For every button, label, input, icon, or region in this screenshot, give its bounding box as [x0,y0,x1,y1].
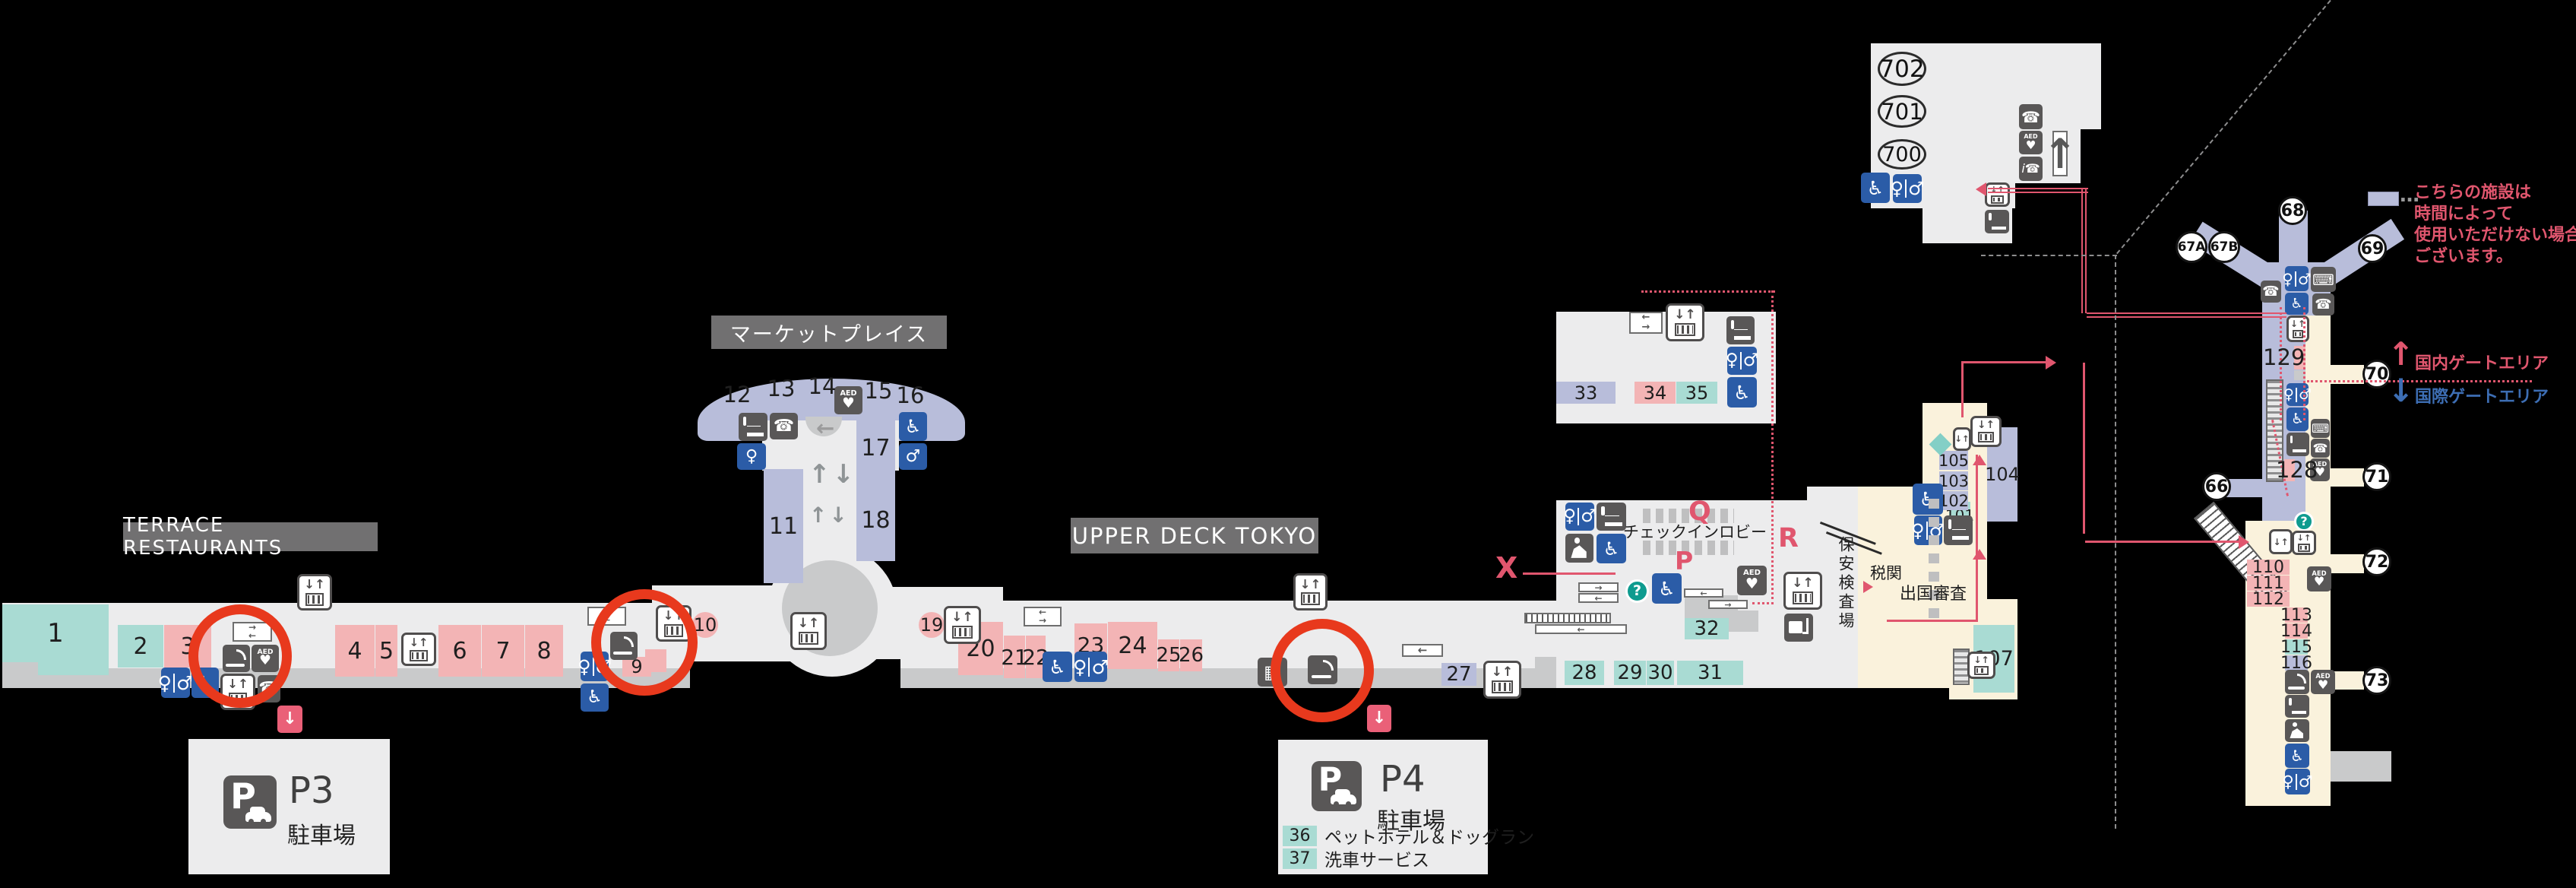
sat-arm-72 [2329,554,2364,573]
moving-walkway-icon: → [1578,582,1619,592]
escalator-icon [2269,529,2293,554]
domestic-arrow-icon: ↑ [2388,338,2414,371]
shop-1: 1 [2,604,109,662]
phone-icon [770,413,798,439]
gate-71: 71 [2362,462,2391,491]
down-to-parking-arrow-icon [1367,705,1391,732]
route-line [2087,312,2286,318]
legend-note-line: ございます。 [2414,246,2576,268]
airport-terminal-floor-map: TERRACE RESTAURANTS マーケットプレイス UPPER DECK… [0,0,2576,888]
shop-16: 16 [895,384,926,407]
baby-room-icon [1597,503,1626,531]
toilet-icon [2285,769,2310,794]
parking-icon: P [1312,761,1362,811]
gate-69: 69 [2358,234,2387,263]
parking-icon: P [223,775,277,829]
route-arrow [2239,535,2249,549]
highlight-circle [1271,619,1374,722]
legend-note-line: こちらの施設は [2414,182,2576,204]
shop-115: 115 [2285,639,2308,655]
parking-p3-type: 駐車場 [287,817,356,850]
baby-room-icon [1726,316,1755,344]
international-arrow-icon: ↓ [2388,374,2414,408]
item-number-badge: 36 [1283,826,1317,846]
shop-26: 26 [1180,639,1202,671]
shop-31: 31 [1677,661,1743,685]
shop-19: 19 [919,612,945,638]
label-128: 128 [2276,458,2309,481]
escalator-icon [1953,427,1971,451]
route-line [1961,361,1964,417]
toilet-icon [1727,347,1757,375]
item-number-badge: 37 [1283,848,1317,869]
parking-p4-item-37: 37 洗車サービス [1283,845,1429,871]
route-line [1752,602,1774,604]
phone-icon [2261,281,2281,303]
shop-33: 33 [1556,382,1616,404]
shop-30: 30 [1647,661,1674,685]
mens-toilet-icon [899,443,927,470]
elevator-icon [944,606,981,644]
item-label: ペットホテル＆ドッグラン [1324,823,1534,848]
shop-7: 7 [482,625,524,677]
information-phone-icon [2019,157,2043,181]
aed-icon [1737,566,1767,595]
phone-icon [2312,293,2334,316]
sat-arm-71 [2329,468,2364,487]
sat-gray-bottom [2331,751,2391,782]
banner-terrace-restaurants: TERRACE RESTAURANTS [123,522,378,551]
womens-toilet-icon [737,443,766,470]
legend-note-line: 時間によって [2414,204,2576,225]
route-arrow [2046,356,2056,369]
banner-upper-deck-tokyo: UPPER DECK TOKYO [1071,518,1318,553]
route-line [1641,290,1775,293]
parking-p3-box: P P3 駐車場 [188,739,390,874]
baby-room-icon [1985,210,2009,233]
shop-28: 28 [1565,661,1604,685]
gate-67A: 67A [2176,231,2207,263]
route-arrow [1973,455,1986,465]
shop-25: 25 [1158,639,1179,671]
accessible-toilet-icon [1652,573,1682,604]
oval-gate-700: 700 [1878,139,1926,170]
shop-2: 2 [118,625,163,668]
down-to-parking-arrow-icon [277,706,302,733]
shop-110: 110 [2247,560,2290,575]
aed-icon [2311,670,2335,694]
moving-walkway-icon: ←→ [1024,607,1062,626]
label-customs: 税関 [1870,565,1902,582]
accessible-toilet-icon [581,683,609,712]
toilet-icon [1893,174,1922,203]
item-label: 洗車サービス [1324,845,1429,871]
shop-17: 17 [856,417,895,479]
route-line [1976,455,1978,620]
elevator-icon [401,633,436,666]
route-letter-q: Q [1688,498,1711,526]
business-pc-icon [2311,419,2330,438]
route-line [2085,541,2239,543]
moving-walkway-icon: ←→ [1629,312,1663,334]
route-letter-r: R [1778,525,1799,553]
oval-gate-701: 701 [1878,95,1926,128]
business-pc-icon [2311,267,2336,292]
escalator-arrows-icon: ↑↓ [818,458,844,490]
bldg1-gray-notch [2,662,38,687]
route-arrow [1863,581,1873,593]
prayer-room-icon [1565,534,1593,563]
shop-27: 27 [1441,663,1476,686]
domestic-gate-area-label: 国内ゲートエリア [2415,350,2549,374]
accessible-toilet-icon [2285,744,2309,768]
phone-icon [2311,439,2330,458]
shop-34: 34 [1635,382,1676,404]
route-line [2081,188,2087,313]
route-arrow [1976,182,1986,196]
route-line [1771,290,1774,604]
shop-111: 111 [2247,576,2290,591]
information-icon [1625,579,1649,603]
escalator-arrows-icon: ↑↓ [812,502,845,528]
phone-icon [2019,104,2043,129]
shop-116: 116 [2285,655,2308,671]
elevator-icon [1666,303,1704,341]
highlight-circle [188,604,292,708]
elevator-icon [1985,182,2010,207]
shop-32: 32 [1685,618,1729,639]
legend-note-line: 使用いただけない場合が [2414,225,2576,246]
shop-14: 14 [807,375,837,398]
toilet-icon [2285,266,2309,291]
aed-icon [2307,566,2331,591]
oval-gate-702: 702 [1878,52,1926,86]
gate-68: 68 [2278,196,2307,225]
elevator-icon [1783,572,1822,610]
shop-11: 11 [764,469,803,583]
shop-113: 113 [2285,607,2308,623]
car-icon [245,812,271,822]
moving-walkway-icon: ← [1402,644,1443,657]
baby-room-icon [2286,433,2309,456]
toilet-icon [161,668,190,698]
route-line [1887,620,1978,622]
gate-66: 66 [2202,472,2231,501]
elevator-icon [1483,661,1521,699]
legend-swatch [2368,192,2399,206]
shop-18: 18 [856,479,895,561]
baby-room-icon [2285,695,2309,718]
elevator-icon [1967,652,1995,679]
banner-market-place: マーケットプレイス [711,316,947,349]
shop-6: 6 [438,625,481,677]
toilet-icon [1074,652,1107,682]
shop-12: 12 [722,383,752,406]
gate-73: 73 [2362,666,2391,695]
moving-walkway-icon [1524,613,1611,623]
route-line [1964,361,2046,363]
moving-walkway-icon: ← [1535,624,1627,634]
shop-35: 35 [1676,382,1717,404]
shop-15: 15 [863,379,894,402]
shop-105: 105 [1939,451,1968,470]
moving-walkway-icon: ← [1578,593,1619,603]
baby-room-icon [1944,515,1973,545]
aed-icon [2019,131,2043,154]
smoking-area-icon [2285,670,2309,694]
moving-walkway-icon: ← [1684,588,1723,598]
route-arrow [1973,549,1986,560]
car-icon [1331,794,1356,804]
accessible-toilet-icon [1597,534,1626,563]
shop-8: 8 [525,625,563,677]
parking-p4-name: P4 [1380,758,1425,801]
label-immigration: 出国審査 [1900,585,1967,603]
parking-p4-box: P P4 駐車場 36 ペットホテル＆ドッグラン 37 洗車サービス [1278,740,1488,874]
shop-13: 13 [766,377,796,400]
walk-direction-arrow: ← [816,415,853,432]
elevator-icon [790,612,827,650]
parking-p4-item-36: 36 ペットホテル＆ドッグラン [1283,823,1534,848]
gate-67B: 67B [2208,231,2240,263]
route-line [1988,188,2088,193]
elevator-icon [1970,416,2002,447]
accessible-toilet-icon [1861,173,1890,203]
shop-102: 102 [1939,491,1968,510]
elevator-icon [2286,316,2309,342]
walkway-up-arrow-icon: ↑ [2052,131,2068,176]
toilet-icon [1565,503,1594,531]
accessible-toilet-icon [1727,377,1757,408]
shop-29: 29 [1614,661,1646,685]
shop-5: 5 [375,625,397,677]
elevator-icon [297,574,332,610]
route-line [1981,255,2117,256]
route-letter-p: P [1675,548,1693,575]
shop-114: 114 [2285,623,2308,639]
elevator-icon [1293,573,1328,610]
elevator-icon [2292,531,2316,555]
accessible-toilet-icon [1043,652,1072,682]
label-129: 129 [2263,346,2296,369]
highlight-circle [591,589,698,696]
route-letter-x: X [1495,553,1517,584]
accessible-toilet-icon [899,412,927,441]
legend-note: こちらの施設は 時間によって 使用いただけない場合が ございます。 [2414,182,2576,268]
shop-24: 24 [1108,622,1157,669]
route-line [2083,363,2085,534]
label-security-check: 保安検査場 [1837,536,1854,631]
route-line [1523,572,1616,575]
aed-icon [834,386,862,414]
parking-p3-name: P3 [289,769,334,812]
gate-72: 72 [2362,547,2391,576]
shop-103: 103 [1939,471,1968,490]
route-line [2307,380,2532,382]
route-line [2115,255,2116,829]
prayer-room-icon [2285,719,2309,742]
baby-room-icon [739,413,767,441]
moving-walkway-icon: → [1708,600,1748,609]
bldg1-annex [38,662,109,675]
baggage-cart-icon [1784,614,1813,642]
shop-112: 112 [2247,591,2290,607]
international-gate-area-label: 国際ゲートエリア [2415,383,2549,408]
shop-4: 4 [335,625,375,677]
information-icon [2294,512,2314,531]
